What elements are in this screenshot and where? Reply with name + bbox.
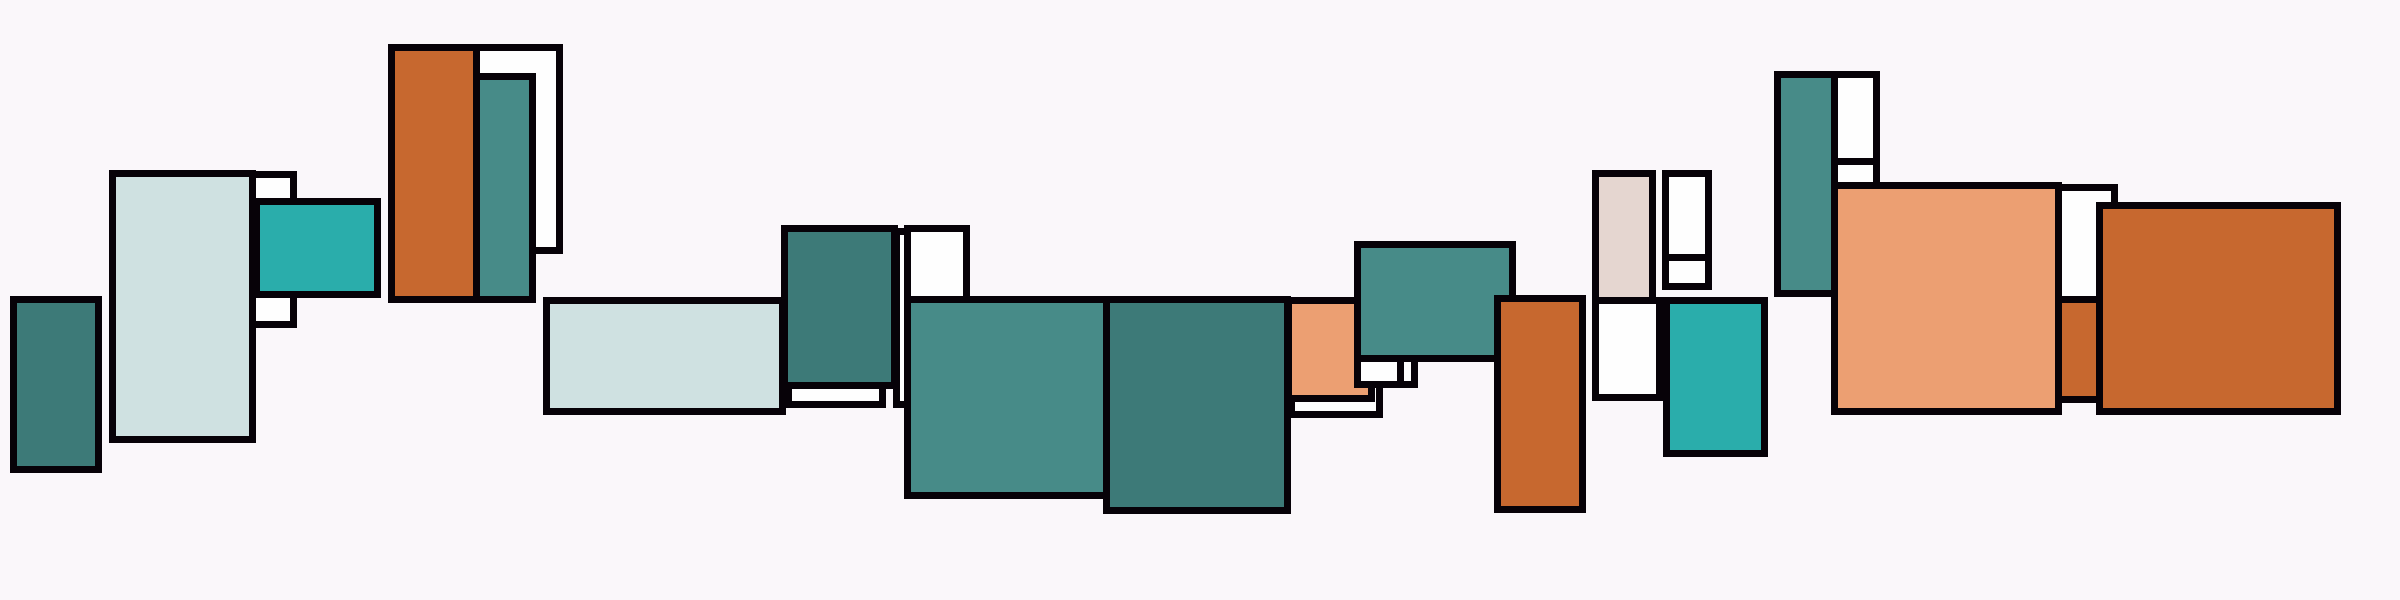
orange-tall-block-mid (1494, 295, 1586, 513)
salmon-large-block (1831, 182, 2062, 415)
white-stacked-upper-far-right (1831, 71, 1880, 165)
orange-large-block (2096, 202, 2341, 415)
teal-large-block-center (904, 296, 1110, 499)
turquoise-block-left (253, 198, 381, 298)
white-small-box-above-teal (904, 225, 970, 305)
pale-horizontal-bar (543, 297, 786, 415)
pale-tall-panel (109, 170, 256, 443)
white-stacked-upper (1662, 170, 1712, 261)
abstract-rectangles-canvas (0, 0, 2400, 600)
beige-column (1592, 170, 1656, 304)
teal-column-far-right (1774, 71, 1838, 297)
turquoise-block-right (1663, 297, 1768, 457)
dark-teal-large-block-center (1103, 296, 1291, 514)
teal-wide-block (1354, 241, 1516, 362)
orange-tall-block-left (388, 44, 480, 303)
dark-teal-block-mid (781, 225, 898, 389)
dark-teal-block-far-left (10, 296, 102, 473)
white-box-below-beige (1592, 297, 1663, 401)
teal-column-over-white (473, 73, 536, 303)
